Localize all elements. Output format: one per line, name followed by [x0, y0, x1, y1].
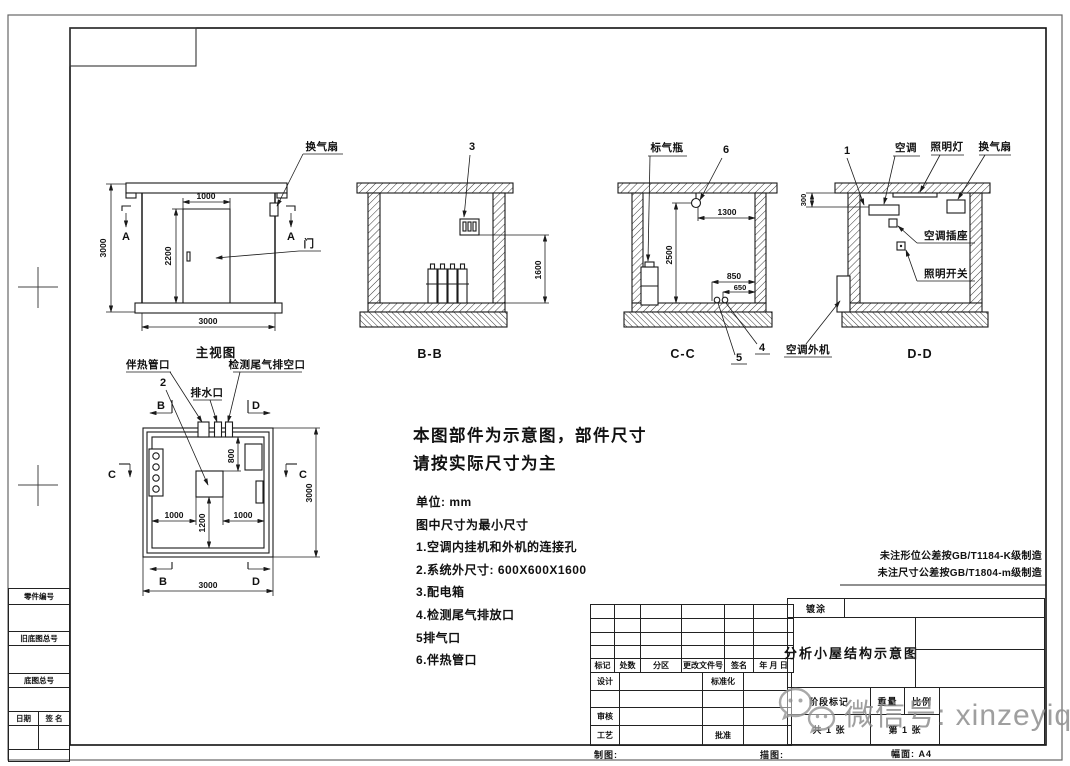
rev-header-doc-no: 更改文件号	[682, 659, 725, 673]
view-section-bb: 3 1600 B-B	[357, 141, 549, 361]
dim-650: 650	[734, 283, 747, 292]
base-slab	[135, 303, 282, 313]
dim-2500: 2500	[664, 245, 674, 264]
label-gas-bottle: 标气瓶	[650, 141, 684, 154]
label-light-switch: 照明开关	[924, 267, 968, 280]
label-door: 门	[304, 237, 315, 250]
view-section-cc: 标气瓶 6 1300 2500 850 650 4 5 C-C	[618, 141, 777, 364]
note-item: 2.系统外尺寸: 600X600X1600	[416, 559, 587, 582]
rev-header-sign: 签名	[725, 659, 754, 673]
dim-1300: 1300	[718, 207, 737, 217]
margin-old-base-label: 旧底图总号	[8, 631, 70, 646]
section-c-letter: C	[108, 469, 116, 481]
callout-4: 4	[759, 342, 766, 354]
sheet-format-label: 幅面: A4	[891, 747, 932, 760]
margin-date-label: 日期	[8, 711, 39, 726]
trace-label: 描图:	[760, 748, 784, 761]
callout-1: 1	[844, 145, 850, 157]
role-approve: 批准	[703, 726, 744, 746]
vent-fan-shape	[947, 200, 965, 213]
engineering-drawing-sheet: 1000 2200 3000 3000 A A 换气扇 门 主视图	[0, 0, 1070, 766]
weight-label: 重量	[870, 687, 905, 715]
centering-mark	[18, 267, 58, 506]
caption-section-cc: C-C	[670, 347, 695, 361]
margin-date-value	[8, 725, 39, 750]
dim-1000-right: 1000	[234, 510, 253, 520]
label-drain-port: 排水口	[191, 386, 224, 399]
note-item: 5排气口	[416, 627, 587, 650]
total-sheets: 共 1 张	[787, 714, 871, 745]
note-item: 1.空调内挂机和外机的连接孔	[416, 536, 587, 559]
role-process: 工艺	[591, 726, 620, 746]
caption-main-view: 主视图	[196, 345, 237, 360]
label-ac-outdoor: 空调外机	[786, 343, 830, 356]
dim-800: 800	[226, 449, 236, 463]
dim-1000-left: 1000	[165, 510, 184, 520]
exhaust-port-plan	[226, 422, 233, 437]
coating-value	[844, 598, 1045, 618]
margin-base-label: 底图总号	[8, 673, 70, 688]
callout-2: 2	[160, 377, 166, 389]
equipment-plan	[245, 444, 262, 470]
section-b-letter: B	[157, 400, 165, 412]
headline-line1: 本图部件为示意图，部件尺寸	[413, 422, 647, 450]
door-handle	[187, 252, 190, 261]
callout-3: 3	[469, 141, 475, 153]
note-min-size: 图中尺寸为最小尺寸	[416, 514, 587, 537]
unit-name-cell	[939, 687, 1045, 745]
rev-header-count: 处数	[615, 659, 641, 673]
ac-indoor-unit-shape	[869, 205, 899, 215]
notes-headline: 本图部件为示意图，部件尺寸 请按实际尺寸为主	[413, 422, 647, 478]
label-heat-trace-port: 伴热管口	[125, 358, 170, 371]
margin-sign-label: 签 名	[38, 711, 70, 726]
margin-part-no-label: 零件编号	[8, 588, 70, 605]
coating-label: 镀涂	[787, 598, 845, 618]
dim-1600: 1600	[533, 260, 543, 279]
callout-6: 6	[723, 144, 729, 156]
ac-outdoor-unit-shape	[837, 276, 850, 312]
dim-width: 3000	[199, 316, 218, 326]
heat-trace-port-plan	[198, 422, 209, 437]
caption-section-bb: B-B	[417, 347, 442, 361]
equipment-small-plan	[256, 481, 263, 503]
ac-socket-shape	[889, 219, 897, 227]
gas-bottle-shape	[641, 262, 658, 305]
drain-port-plan	[215, 422, 222, 437]
margin-bottom-cell	[8, 749, 70, 762]
revision-grid: 标记 处数 分区 更改文件号 签名 年 月 日	[590, 604, 794, 673]
system-cabinet-plan	[196, 471, 223, 497]
sheet-no: 第 1 张	[870, 714, 940, 745]
drawing-title: 分析小屋结构示意图	[787, 617, 916, 688]
margin-old-base-value	[8, 645, 70, 674]
note-item: 4.检测尾气排放口	[416, 604, 587, 627]
dim-850: 850	[727, 271, 741, 281]
view-plan: 伴热管口 排水口 检测尾气排空口 2 B B D D	[108, 358, 320, 596]
view-section-dd: 1 空调 照明灯 换气扇 空调插座 照明开关 空调外机 300 D-D	[784, 140, 1012, 361]
stage-mark-label: 阶段标记	[787, 687, 871, 715]
callout-5: 5	[736, 352, 742, 364]
fan-unit-shape	[270, 203, 278, 216]
dim-3000-bottom: 3000	[199, 580, 218, 590]
section-a-letter: A	[287, 231, 295, 243]
view-main-elevation: 1000 2200 3000 3000 A A 换气扇 门 主视图	[98, 140, 343, 360]
note-item: 3.配电箱	[416, 581, 587, 604]
distribution-box-shape	[460, 219, 479, 235]
rev-header-zone: 分区	[641, 659, 682, 673]
label-ac-socket: 空调插座	[924, 229, 968, 242]
rev-header-mark: 标记	[591, 659, 615, 673]
gas-bottle-rack-plan	[149, 449, 163, 496]
note-item: 6.伴热管口	[416, 649, 587, 672]
headline-line2: 请按实际尺寸为主	[413, 450, 647, 478]
draft-label: 制图:	[594, 748, 618, 761]
signature-grid: 设计 标准化 审核 工艺批准	[590, 672, 792, 746]
notes-list: 单位: mm 图中尺寸为最小尺寸 1.空调内挂机和外机的连接孔 2.系统外尺寸:…	[416, 491, 587, 672]
margin-sign-value	[38, 725, 70, 750]
dim-3000-right: 3000	[304, 483, 314, 502]
section-d-letter: D	[252, 576, 260, 588]
ceiling-light-shape	[893, 193, 937, 197]
title-block: 标记 处数 分区 更改文件号 签名 年 月 日 设计 标准化 审核 工艺批准 镀…	[586, 598, 1045, 745]
role-review: 审核	[591, 708, 620, 726]
section-a-letter: A	[122, 231, 130, 243]
label-fan: 换气扇	[979, 140, 1012, 153]
dim-height: 3000	[98, 238, 108, 257]
section-c-letter: C	[299, 469, 307, 481]
dim-door-height: 2200	[163, 246, 173, 265]
corner-box	[70, 28, 196, 66]
margin-base-value	[8, 687, 70, 712]
section-d-letter: D	[252, 400, 260, 412]
label-vent-fan: 换气扇	[306, 140, 339, 153]
dim-door-width: 1000	[197, 191, 216, 201]
note-unit: 单位: mm	[416, 491, 587, 514]
margin-part-no-value	[8, 604, 70, 632]
tolerance-note: 未注尺寸公差按GB/T1804-m级制造	[780, 565, 1042, 582]
scale-label: 比例	[904, 687, 940, 715]
dim-300: 300	[799, 194, 808, 207]
vent-port-shape	[722, 297, 728, 303]
drawing-no-cell	[915, 617, 1045, 650]
label-light: 照明灯	[931, 140, 964, 153]
caption-section-dd: D-D	[907, 347, 932, 361]
tolerance-note: 未注形位公差按GB/T1184-K级制造	[780, 548, 1042, 565]
role-design: 设计	[591, 673, 620, 691]
material-cell	[915, 649, 1045, 688]
section-a-marks: A A	[122, 206, 295, 243]
dim-1200: 1200	[197, 513, 207, 532]
label-exhaust-port: 检测尾气排空口	[229, 358, 306, 371]
gas-cylinders-shape	[426, 264, 469, 303]
exhaust-port-shape	[714, 297, 720, 303]
role-standardization: 标准化	[703, 673, 744, 691]
heat-trace-port-shape	[692, 199, 701, 208]
label-ac: 空调	[895, 141, 917, 154]
tolerance-notes: 未注形位公差按GB/T1184-K级制造 未注尺寸公差按GB/T1804-m级制…	[780, 548, 1042, 582]
section-b-letter: B	[159, 576, 167, 588]
